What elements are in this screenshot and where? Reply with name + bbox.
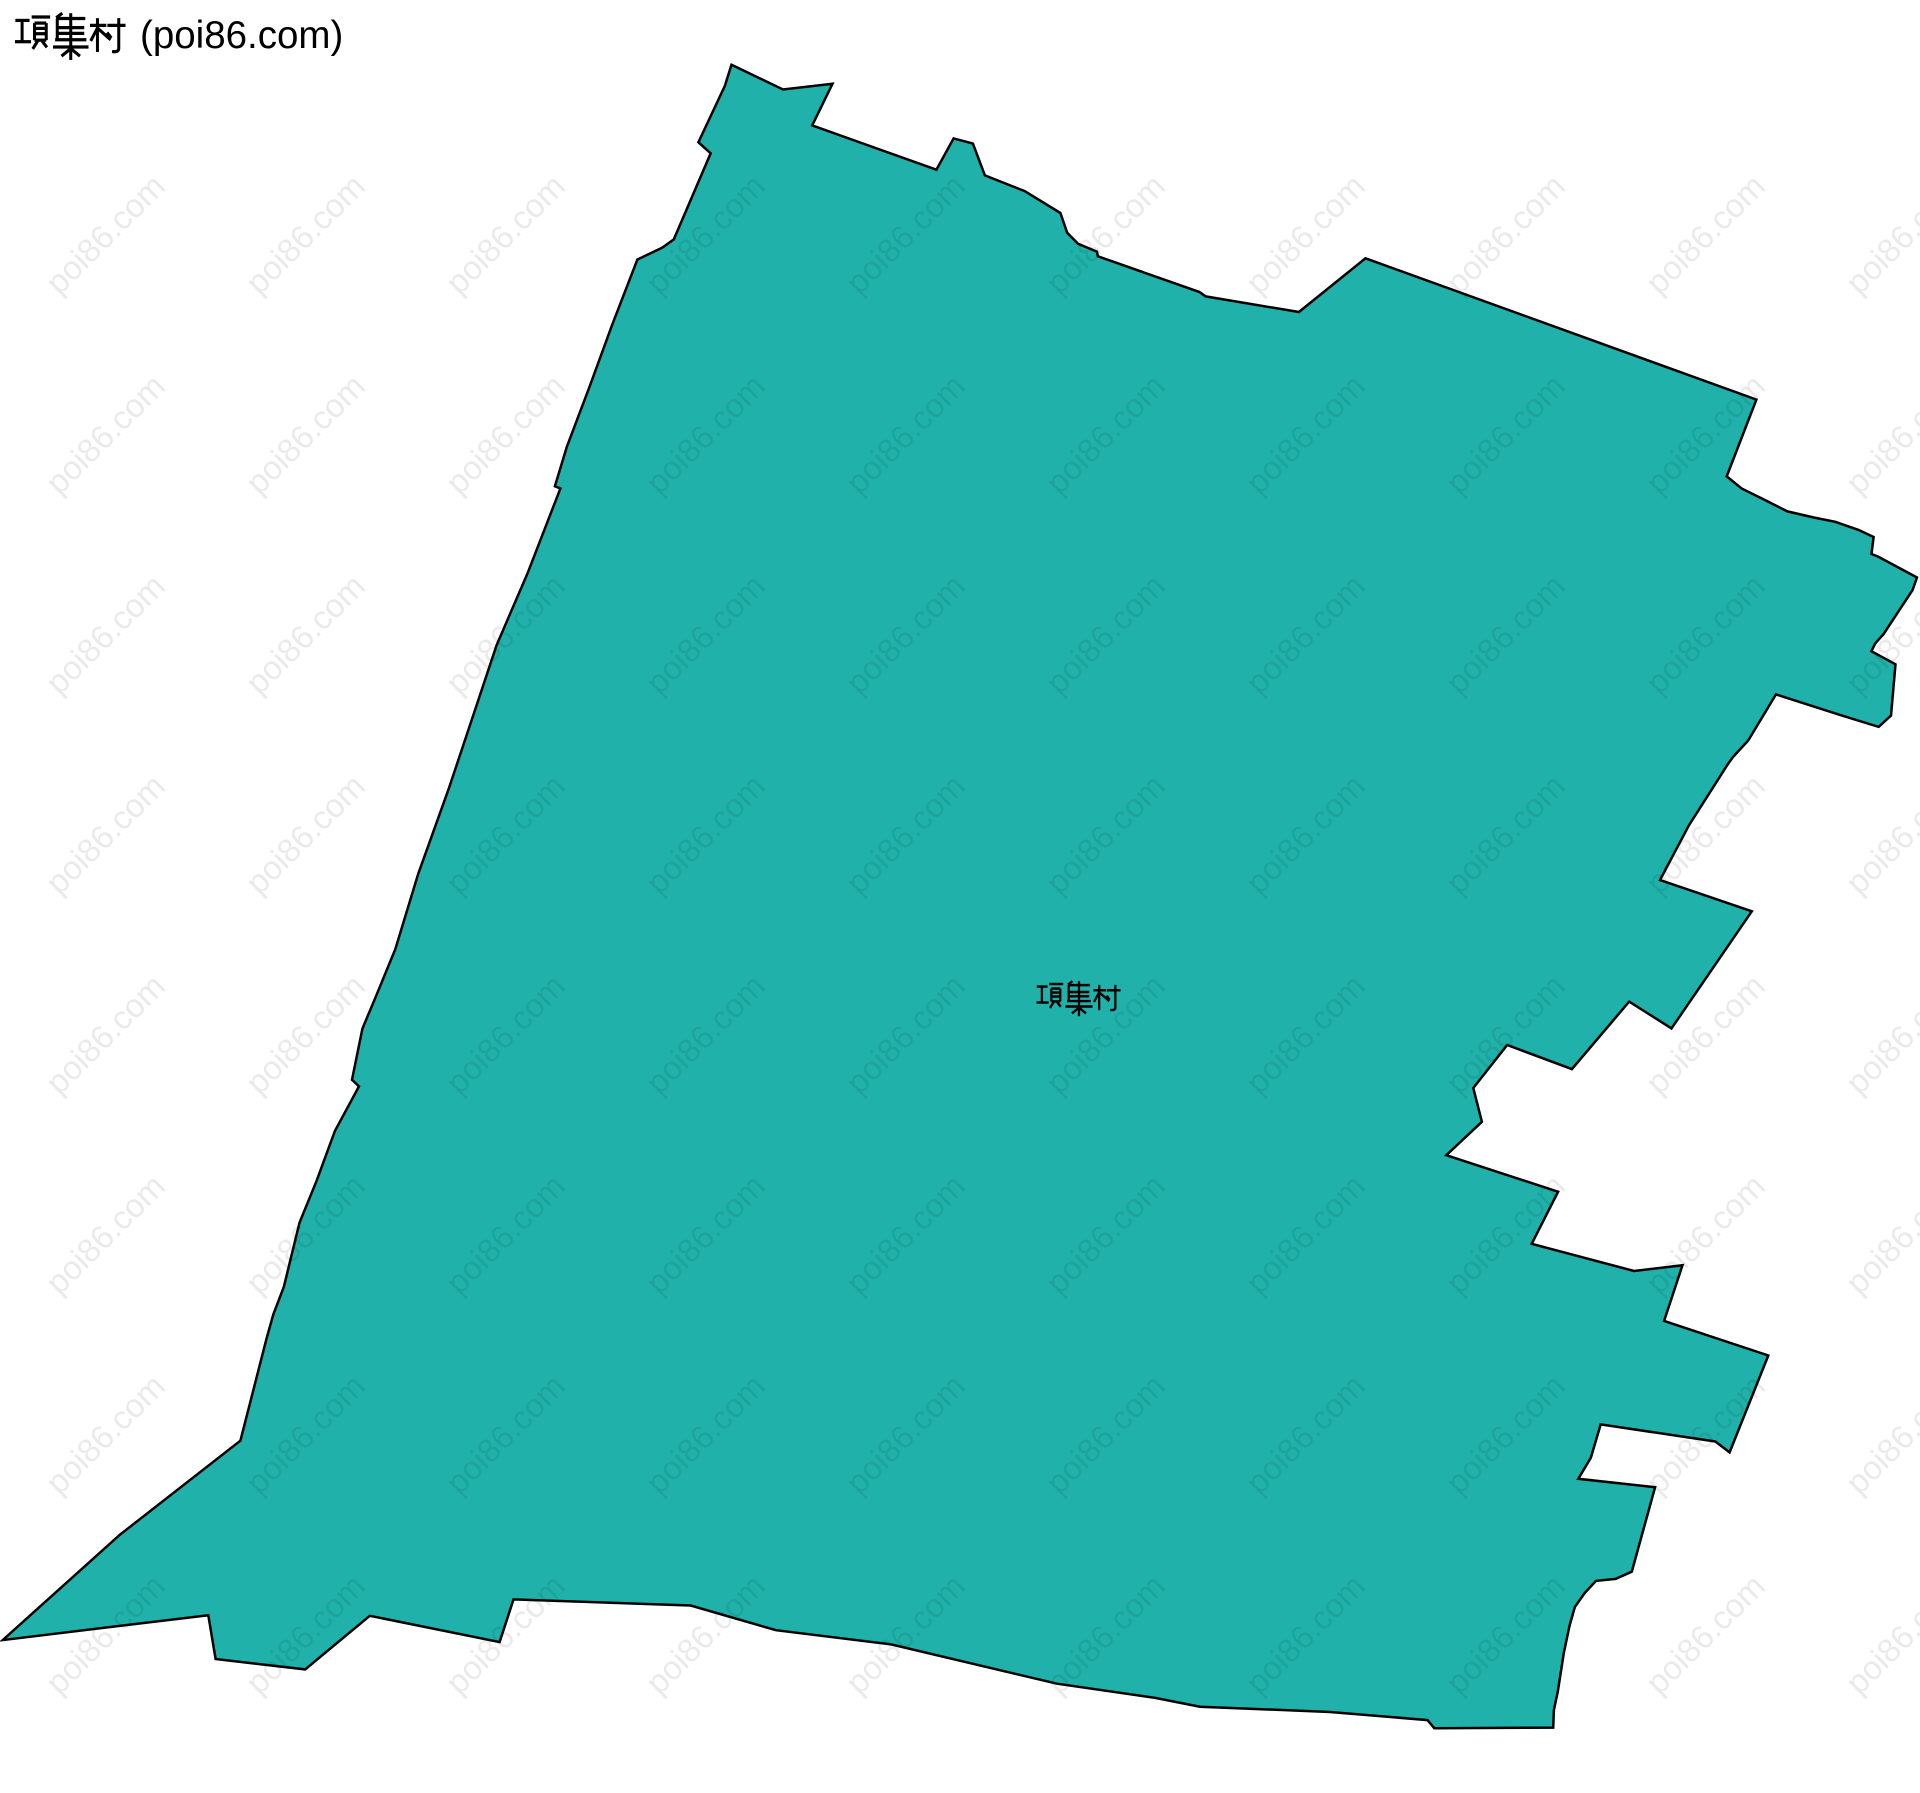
- svg-text:poi86.com: poi86.com: [1838, 1567, 1920, 1701]
- svg-text:poi86.com: poi86.com: [1838, 967, 1920, 1101]
- svg-text:poi86.com: poi86.com: [1438, 167, 1572, 301]
- svg-text:poi86.com: poi86.com: [1838, 1367, 1920, 1501]
- svg-text:poi86.com: poi86.com: [38, 367, 172, 501]
- svg-text:poi86.com: poi86.com: [238, 167, 372, 301]
- svg-text:(poi86.com): (poi86.com): [140, 14, 343, 57]
- svg-text:poi86.com: poi86.com: [38, 1367, 172, 1501]
- svg-text:poi86.com: poi86.com: [1838, 1167, 1920, 1301]
- svg-text:poi86.com: poi86.com: [1638, 1567, 1772, 1701]
- svg-text:poi86.com: poi86.com: [238, 767, 372, 901]
- svg-text:poi86.com: poi86.com: [38, 1167, 172, 1301]
- svg-text:poi86.com: poi86.com: [38, 167, 172, 301]
- svg-text:poi86.com: poi86.com: [1838, 767, 1920, 901]
- svg-text:poi86.com: poi86.com: [238, 367, 372, 501]
- svg-text:poi86.com: poi86.com: [1838, 367, 1920, 501]
- svg-text:poi86.com: poi86.com: [38, 567, 172, 701]
- svg-text:poi86.com: poi86.com: [38, 967, 172, 1101]
- svg-text:poi86.com: poi86.com: [1638, 167, 1772, 301]
- svg-text:poi86.com: poi86.com: [238, 567, 372, 701]
- svg-text:poi86.com: poi86.com: [1638, 1167, 1772, 1301]
- svg-text:poi86.com: poi86.com: [1838, 167, 1920, 301]
- svg-text:poi86.com: poi86.com: [438, 367, 572, 501]
- svg-text:poi86.com: poi86.com: [438, 167, 572, 301]
- svg-text:poi86.com: poi86.com: [38, 767, 172, 901]
